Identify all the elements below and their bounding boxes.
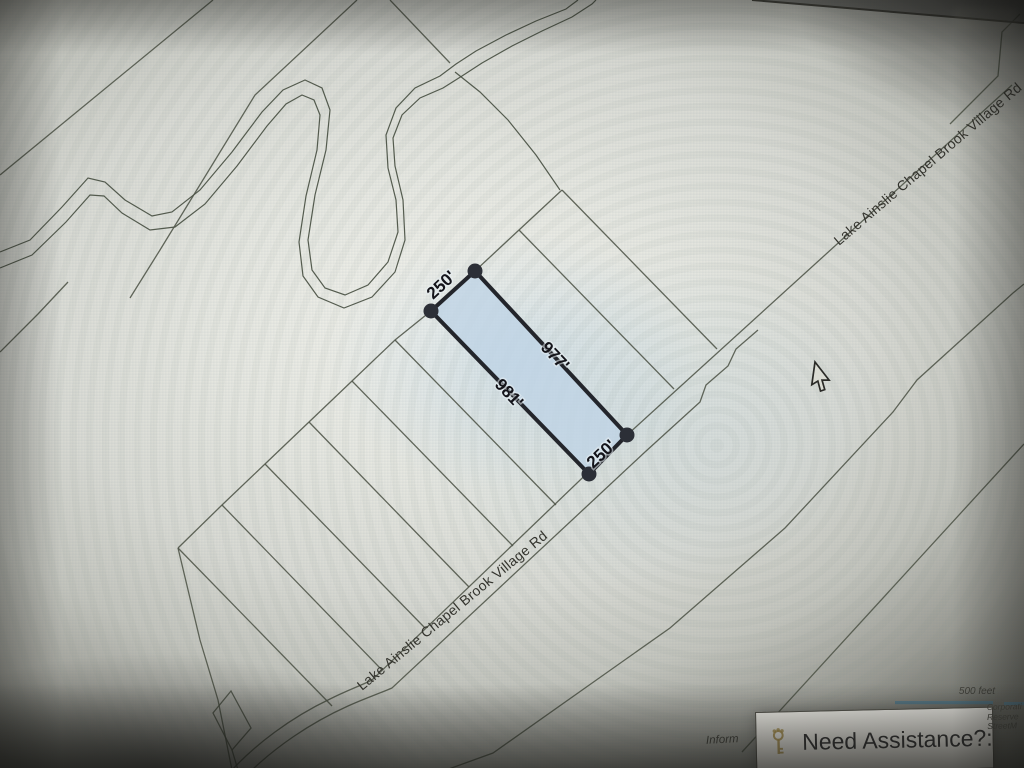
key-icon (769, 716, 788, 768)
lot-line (352, 381, 513, 546)
road-label-southwest: Lake Ainslie Chapel Brook Village Rd (354, 527, 551, 693)
attribution-line: StreetM (987, 720, 1024, 732)
boundary-line (130, 0, 357, 298)
map-attribution: Corporati Reserve StreetM (987, 701, 1024, 732)
lot-line (562, 190, 717, 349)
map-canvas[interactable]: 250' 977' 981' 250' Lake Ainslie Chapel … (0, 0, 1024, 768)
boundary-line (0, 0, 213, 175)
back-lot-line (475, 190, 562, 271)
boundary-line (0, 282, 68, 352)
attribution-partial: Inform (706, 733, 739, 747)
screen-glare (953, 6, 1018, 32)
back-lot-line (178, 311, 431, 548)
highlighted-parcel[interactable]: 250' 977' 981' 250' (423, 264, 635, 482)
map-viewer-screen: 250' 977' 981' 250' Lake Ainslie Chapel … (0, 0, 1024, 768)
stream-lower-bank (0, 0, 596, 308)
boundary-line (742, 444, 1024, 752)
parcel-vertex-dot (424, 304, 439, 319)
need-assistance-button[interactable]: Need Assistance?: (755, 707, 994, 768)
stream-tributary (455, 72, 560, 190)
parcel-vertex-dot (468, 264, 483, 279)
road-label-northeast: Lake Ainslie Chapel Brook Village Rd (831, 79, 1024, 248)
lot-line (222, 505, 382, 670)
help-title: Need Assistance?: (802, 724, 993, 755)
small-parcel-outline (213, 691, 251, 750)
cursor-icon (811, 362, 831, 392)
lot-line (309, 422, 469, 587)
boundary-line (390, 0, 450, 63)
scale-bar-label: 500 feet (959, 686, 996, 697)
parcel-vertex-dot (620, 428, 635, 443)
lot-line (178, 548, 332, 706)
lot-line (265, 464, 425, 628)
scale-bar-segment (895, 701, 993, 704)
stream-upper-bank (0, 0, 578, 295)
